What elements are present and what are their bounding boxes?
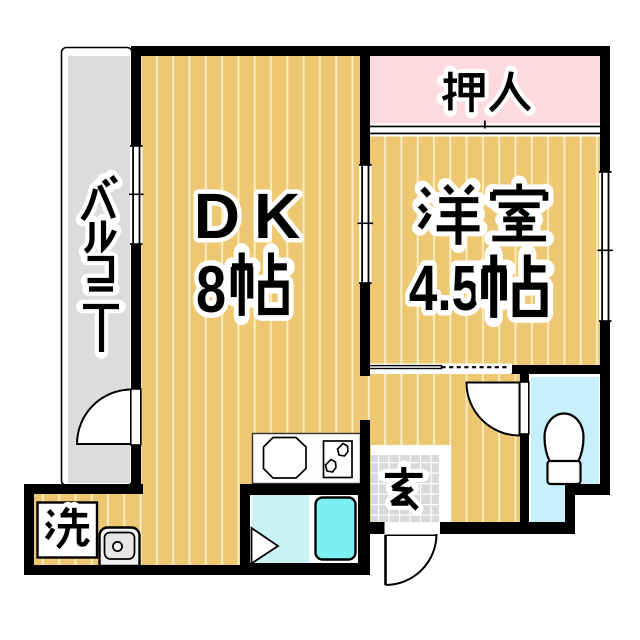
svg-text:DK: DK <box>194 180 314 252</box>
svg-text:8: 8 <box>196 252 226 326</box>
svg-text:4.5: 4.5 <box>409 254 480 325</box>
